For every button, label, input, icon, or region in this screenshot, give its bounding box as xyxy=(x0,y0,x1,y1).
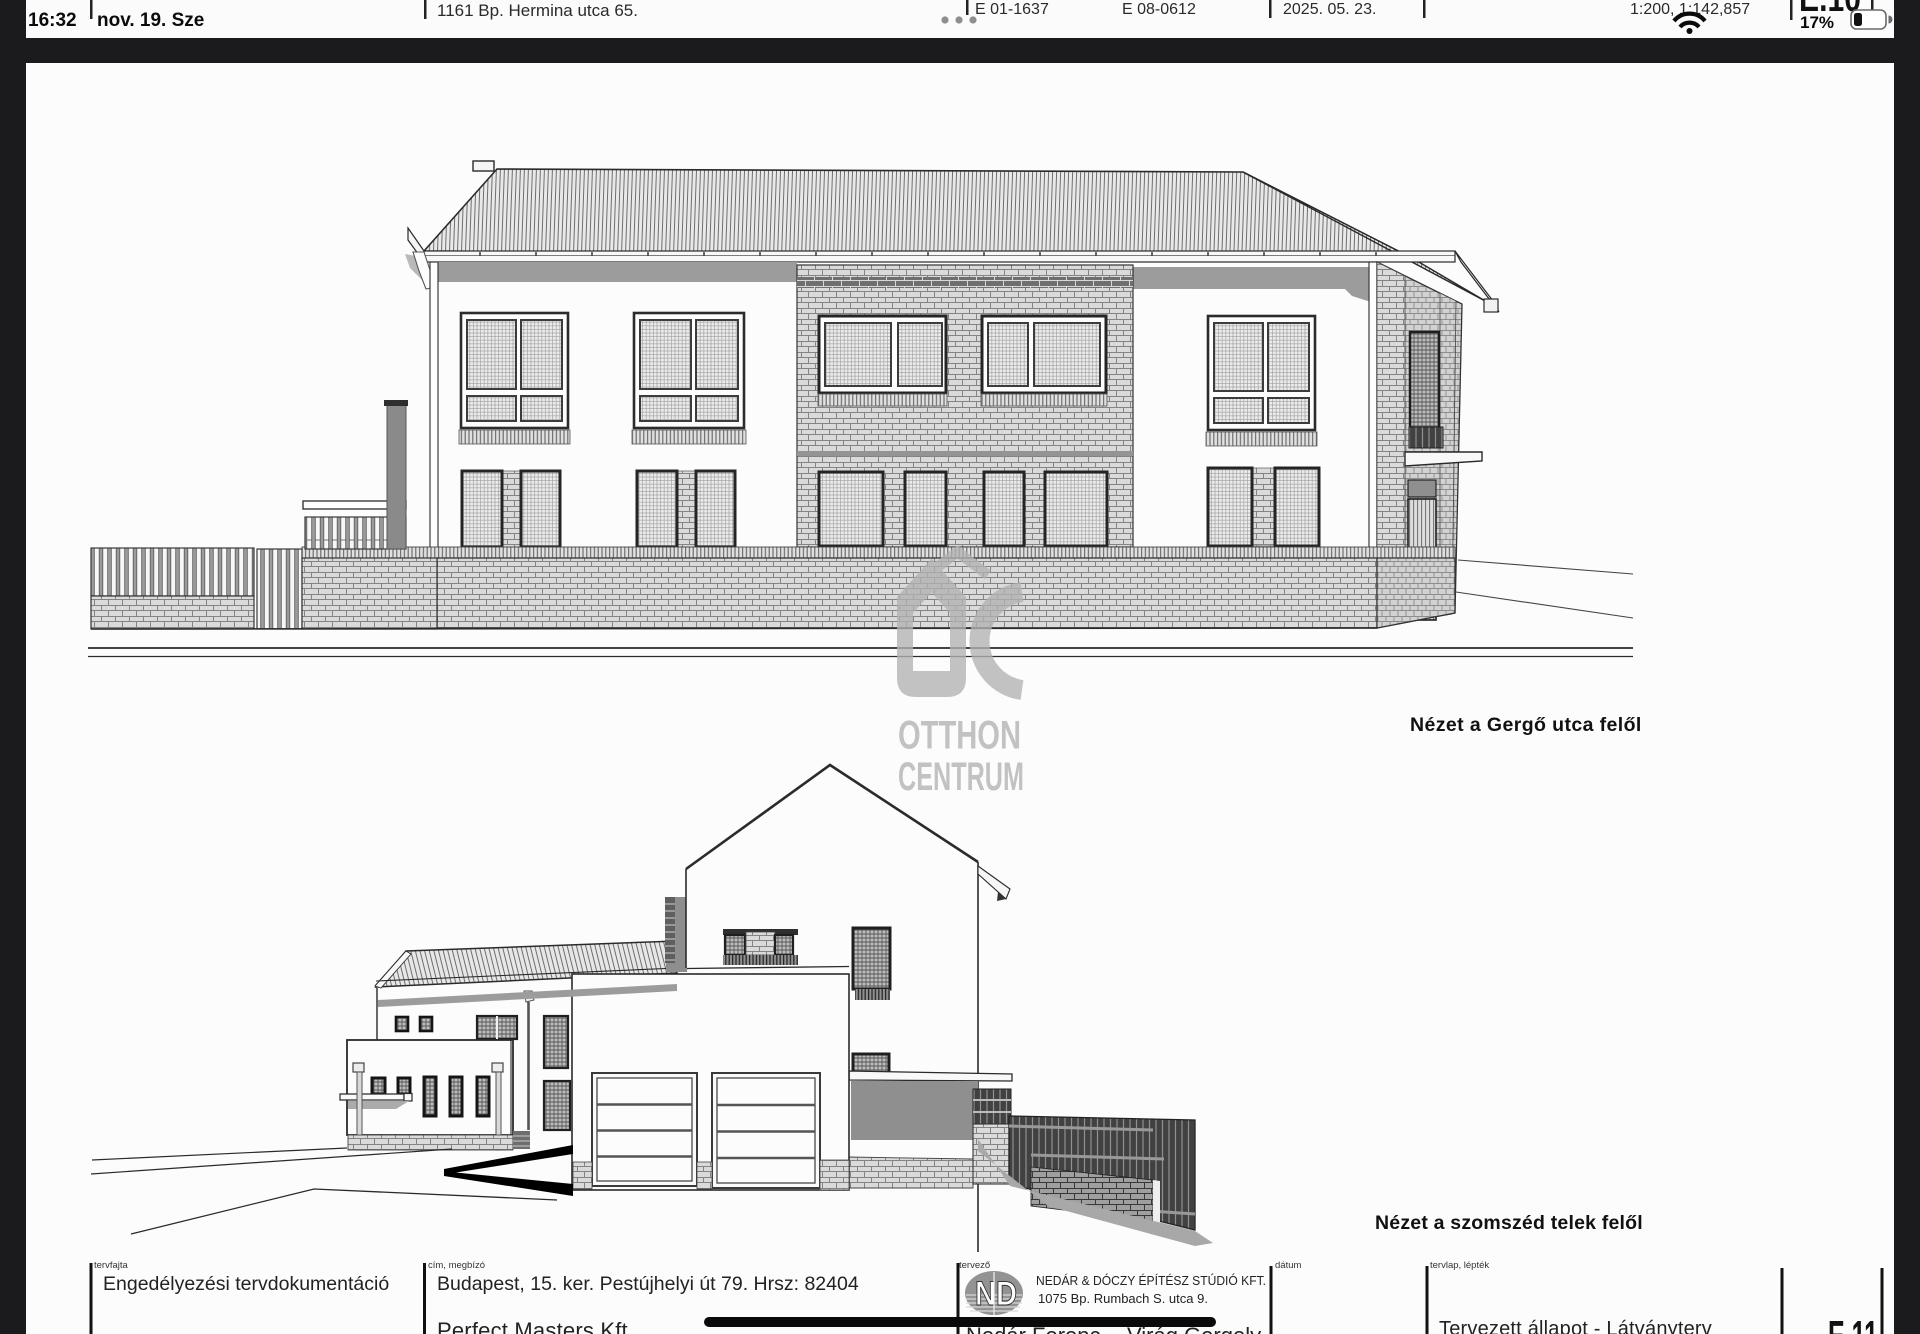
svg-text:Tervezett állapot - Látványter: Tervezett állapot - Látványterv xyxy=(1439,1318,1712,1334)
svg-text:NEDÁR & DÓCZY ÉPÍTÉSZ STÚDIÓ K: NEDÁR & DÓCZY ÉPÍTÉSZ STÚDIÓ KFT. xyxy=(1036,1273,1266,1288)
svg-text:Nézet a Gergő utca felől: Nézet a Gergő utca felől xyxy=(1410,714,1642,736)
svg-text:tervlap, lépték: tervlap, lépték xyxy=(1430,1260,1489,1271)
svg-text:E 01-1637: E 01-1637 xyxy=(975,1,1049,18)
svg-text:1161 Bp. Hermina utca 65.: 1161 Bp. Hermina utca 65. xyxy=(437,1,638,20)
svg-text:17%: 17% xyxy=(1800,13,1834,32)
svg-text:16:32: 16:32 xyxy=(28,10,77,31)
svg-text:2025. 05. 23.: 2025. 05. 23. xyxy=(1283,1,1376,18)
svg-text:tervfajta: tervfajta xyxy=(94,1260,129,1271)
svg-text:Engedélyezési tervdokumentáció: Engedélyezési tervdokumentáció xyxy=(103,1273,389,1295)
svg-text:CENTRUM: CENTRUM xyxy=(898,755,1024,799)
svg-text:tervező: tervező xyxy=(959,1260,990,1271)
svg-text:Budapest, 15. ker. Pestújhelyi: Budapest, 15. ker. Pestújhelyi út 79. Hr… xyxy=(437,1273,859,1295)
svg-text:Perfect Masters Kft: Perfect Masters Kft xyxy=(437,1318,628,1334)
svg-text:E 08-0612: E 08-0612 xyxy=(1122,1,1196,18)
svg-text:cím, megbízó: cím, megbízó xyxy=(428,1260,485,1271)
svg-text:1075 Bp. Rumbach S. utca 9.: 1075 Bp. Rumbach S. utca 9. xyxy=(1038,1291,1208,1306)
svg-text:dátum: dátum xyxy=(1275,1260,1301,1271)
svg-text:Nézet a szomszéd telek felől: Nézet a szomszéd telek felől xyxy=(1375,1212,1643,1234)
svg-text:OTTHON: OTTHON xyxy=(898,714,1021,758)
svg-text:ND: ND xyxy=(975,1275,1017,1313)
svg-text:E.11: E.11 xyxy=(1828,1312,1878,1334)
svg-text:nov. 19. Sze: nov. 19. Sze xyxy=(97,10,204,31)
